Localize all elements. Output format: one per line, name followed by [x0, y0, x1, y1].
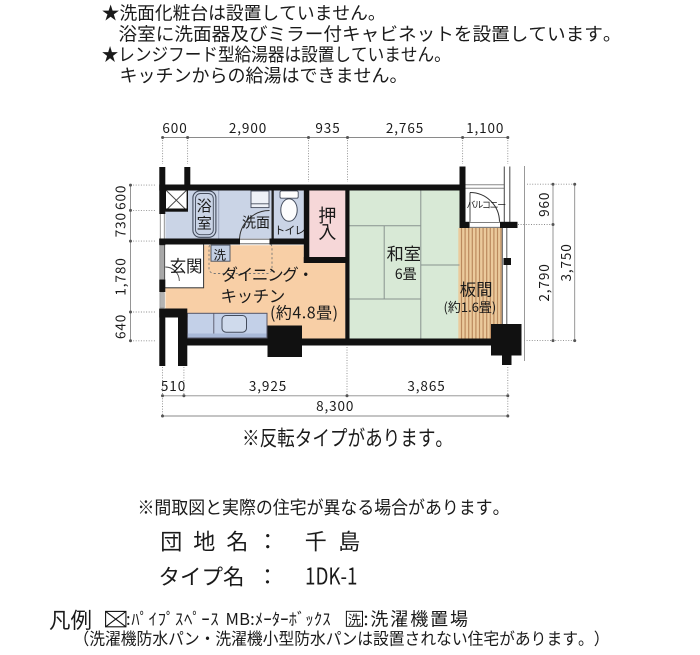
svg-text:※間取図と実際の住宅が異なる場合があります。: ※間取図と実際の住宅が異なる場合があります。 — [138, 494, 510, 520]
svg-text:1,100: 1,100 — [466, 117, 504, 137]
svg-text:玄関: 玄関 — [170, 253, 202, 277]
svg-text:洗面: 洗面 — [242, 212, 270, 232]
svg-text:730: 730 — [109, 212, 129, 237]
svg-text:8,300: 8,300 — [316, 395, 354, 415]
svg-text:3,865: 3,865 — [407, 375, 445, 395]
svg-text:タイプ名：: タイプ名： — [159, 561, 279, 592]
svg-text:キッチンからの給湯はできません。: キッチンからの給湯はできません。 — [120, 62, 408, 88]
svg-text:3,750: 3,750 — [555, 243, 575, 281]
svg-text:510: 510 — [161, 375, 186, 395]
svg-text:2,765: 2,765 — [386, 117, 424, 137]
svg-text:入: 入 — [318, 218, 336, 244]
svg-text:(約1.6畳): (約1.6畳) — [443, 297, 496, 316]
svg-text:ダイニング・: ダイニング・ — [222, 262, 313, 286]
svg-text:2,790: 2,790 — [533, 263, 553, 301]
svg-text:600: 600 — [162, 117, 187, 137]
svg-text:(約4.8畳): (約4.8畳) — [270, 300, 339, 324]
svg-text:6畳: 6畳 — [395, 264, 417, 284]
svg-text:1,780: 1,780 — [109, 257, 129, 295]
svg-text:和室: 和室 — [387, 240, 421, 265]
svg-text:2,900: 2,900 — [229, 117, 267, 137]
svg-text:960: 960 — [533, 192, 553, 217]
svg-text:室: 室 — [197, 213, 212, 234]
svg-text:3,925: 3,925 — [249, 375, 287, 395]
svg-text:1DK-1: 1DK-1 — [305, 558, 358, 592]
svg-text:935: 935 — [315, 117, 340, 137]
svg-text:600: 600 — [109, 185, 129, 210]
svg-text:※反転タイプがあります。: ※反転タイプがあります。 — [242, 423, 453, 453]
svg-text:640: 640 — [109, 314, 129, 339]
svg-text:洗: 洗 — [214, 244, 227, 263]
svg-text:バルコニー: バルコニー — [467, 198, 507, 211]
svg-text:トイレ: トイレ — [274, 222, 304, 238]
svg-text:（洗濯機防水パン・洗濯機小型防水パンは設置されない住宅があり: （洗濯機防水パン・洗濯機小型防水パンは設置されない住宅があります。） — [74, 626, 610, 650]
